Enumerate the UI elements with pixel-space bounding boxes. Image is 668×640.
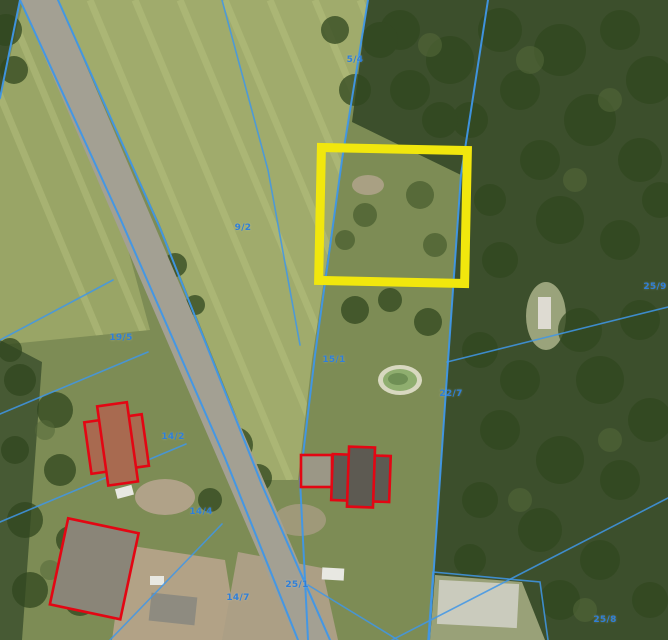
aerial-map — [0, 0, 668, 640]
bare-spot — [352, 175, 384, 195]
cadastral-map[interactable]: 5/49/219/514/214/414/715/122/725/925/125… — [0, 0, 668, 640]
building-house-center — [331, 446, 391, 508]
pond — [378, 365, 422, 395]
greenhouse — [437, 580, 519, 628]
building-garage — [301, 455, 332, 487]
